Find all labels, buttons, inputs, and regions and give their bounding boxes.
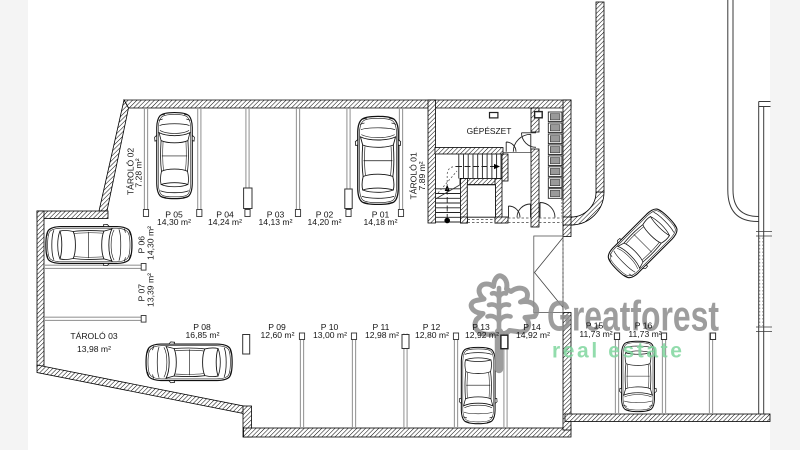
svg-text:TÁROLÓ 03: TÁROLÓ 03 [70, 331, 118, 341]
svg-text:12,98 m²: 12,98 m² [365, 330, 399, 340]
svg-text:14,18 m²: 14,18 m² [364, 217, 398, 227]
svg-text:7.89 m²: 7.89 m² [417, 161, 427, 190]
svg-text:11,73 m²: 11,73 m² [628, 329, 661, 339]
svg-text:14,24 m²: 14,24 m² [208, 217, 242, 227]
svg-text:13,00 m²: 13,00 m² [313, 330, 347, 340]
svg-text:14,13 m²: 14,13 m² [259, 217, 293, 227]
svg-text:14,30 m²: 14,30 m² [157, 217, 191, 227]
svg-text:12,60 m²: 12,60 m² [261, 330, 295, 340]
svg-text:real estate: real estate [552, 340, 685, 363]
svg-text:12,80 m²: 12,80 m² [415, 330, 449, 340]
svg-text:14,20 m²: 14,20 m² [308, 217, 342, 227]
svg-text:GÉPÉSZET: GÉPÉSZET [467, 126, 512, 136]
svg-text:16,85 m²: 16,85 m² [186, 330, 220, 340]
svg-text:14,92 m²: 14,92 m² [516, 330, 550, 340]
svg-text:11,73 m²: 11,73 m² [579, 329, 612, 339]
svg-text:14,30 m²: 14,30 m² [146, 226, 156, 260]
svg-text:13,98 m²: 13,98 m² [77, 344, 111, 354]
svg-text:13,39 m²: 13,39 m² [146, 273, 156, 307]
svg-text:12,92 m²: 12,92 m² [465, 330, 499, 340]
svg-text:7.28 m²: 7.28 m² [133, 158, 143, 187]
